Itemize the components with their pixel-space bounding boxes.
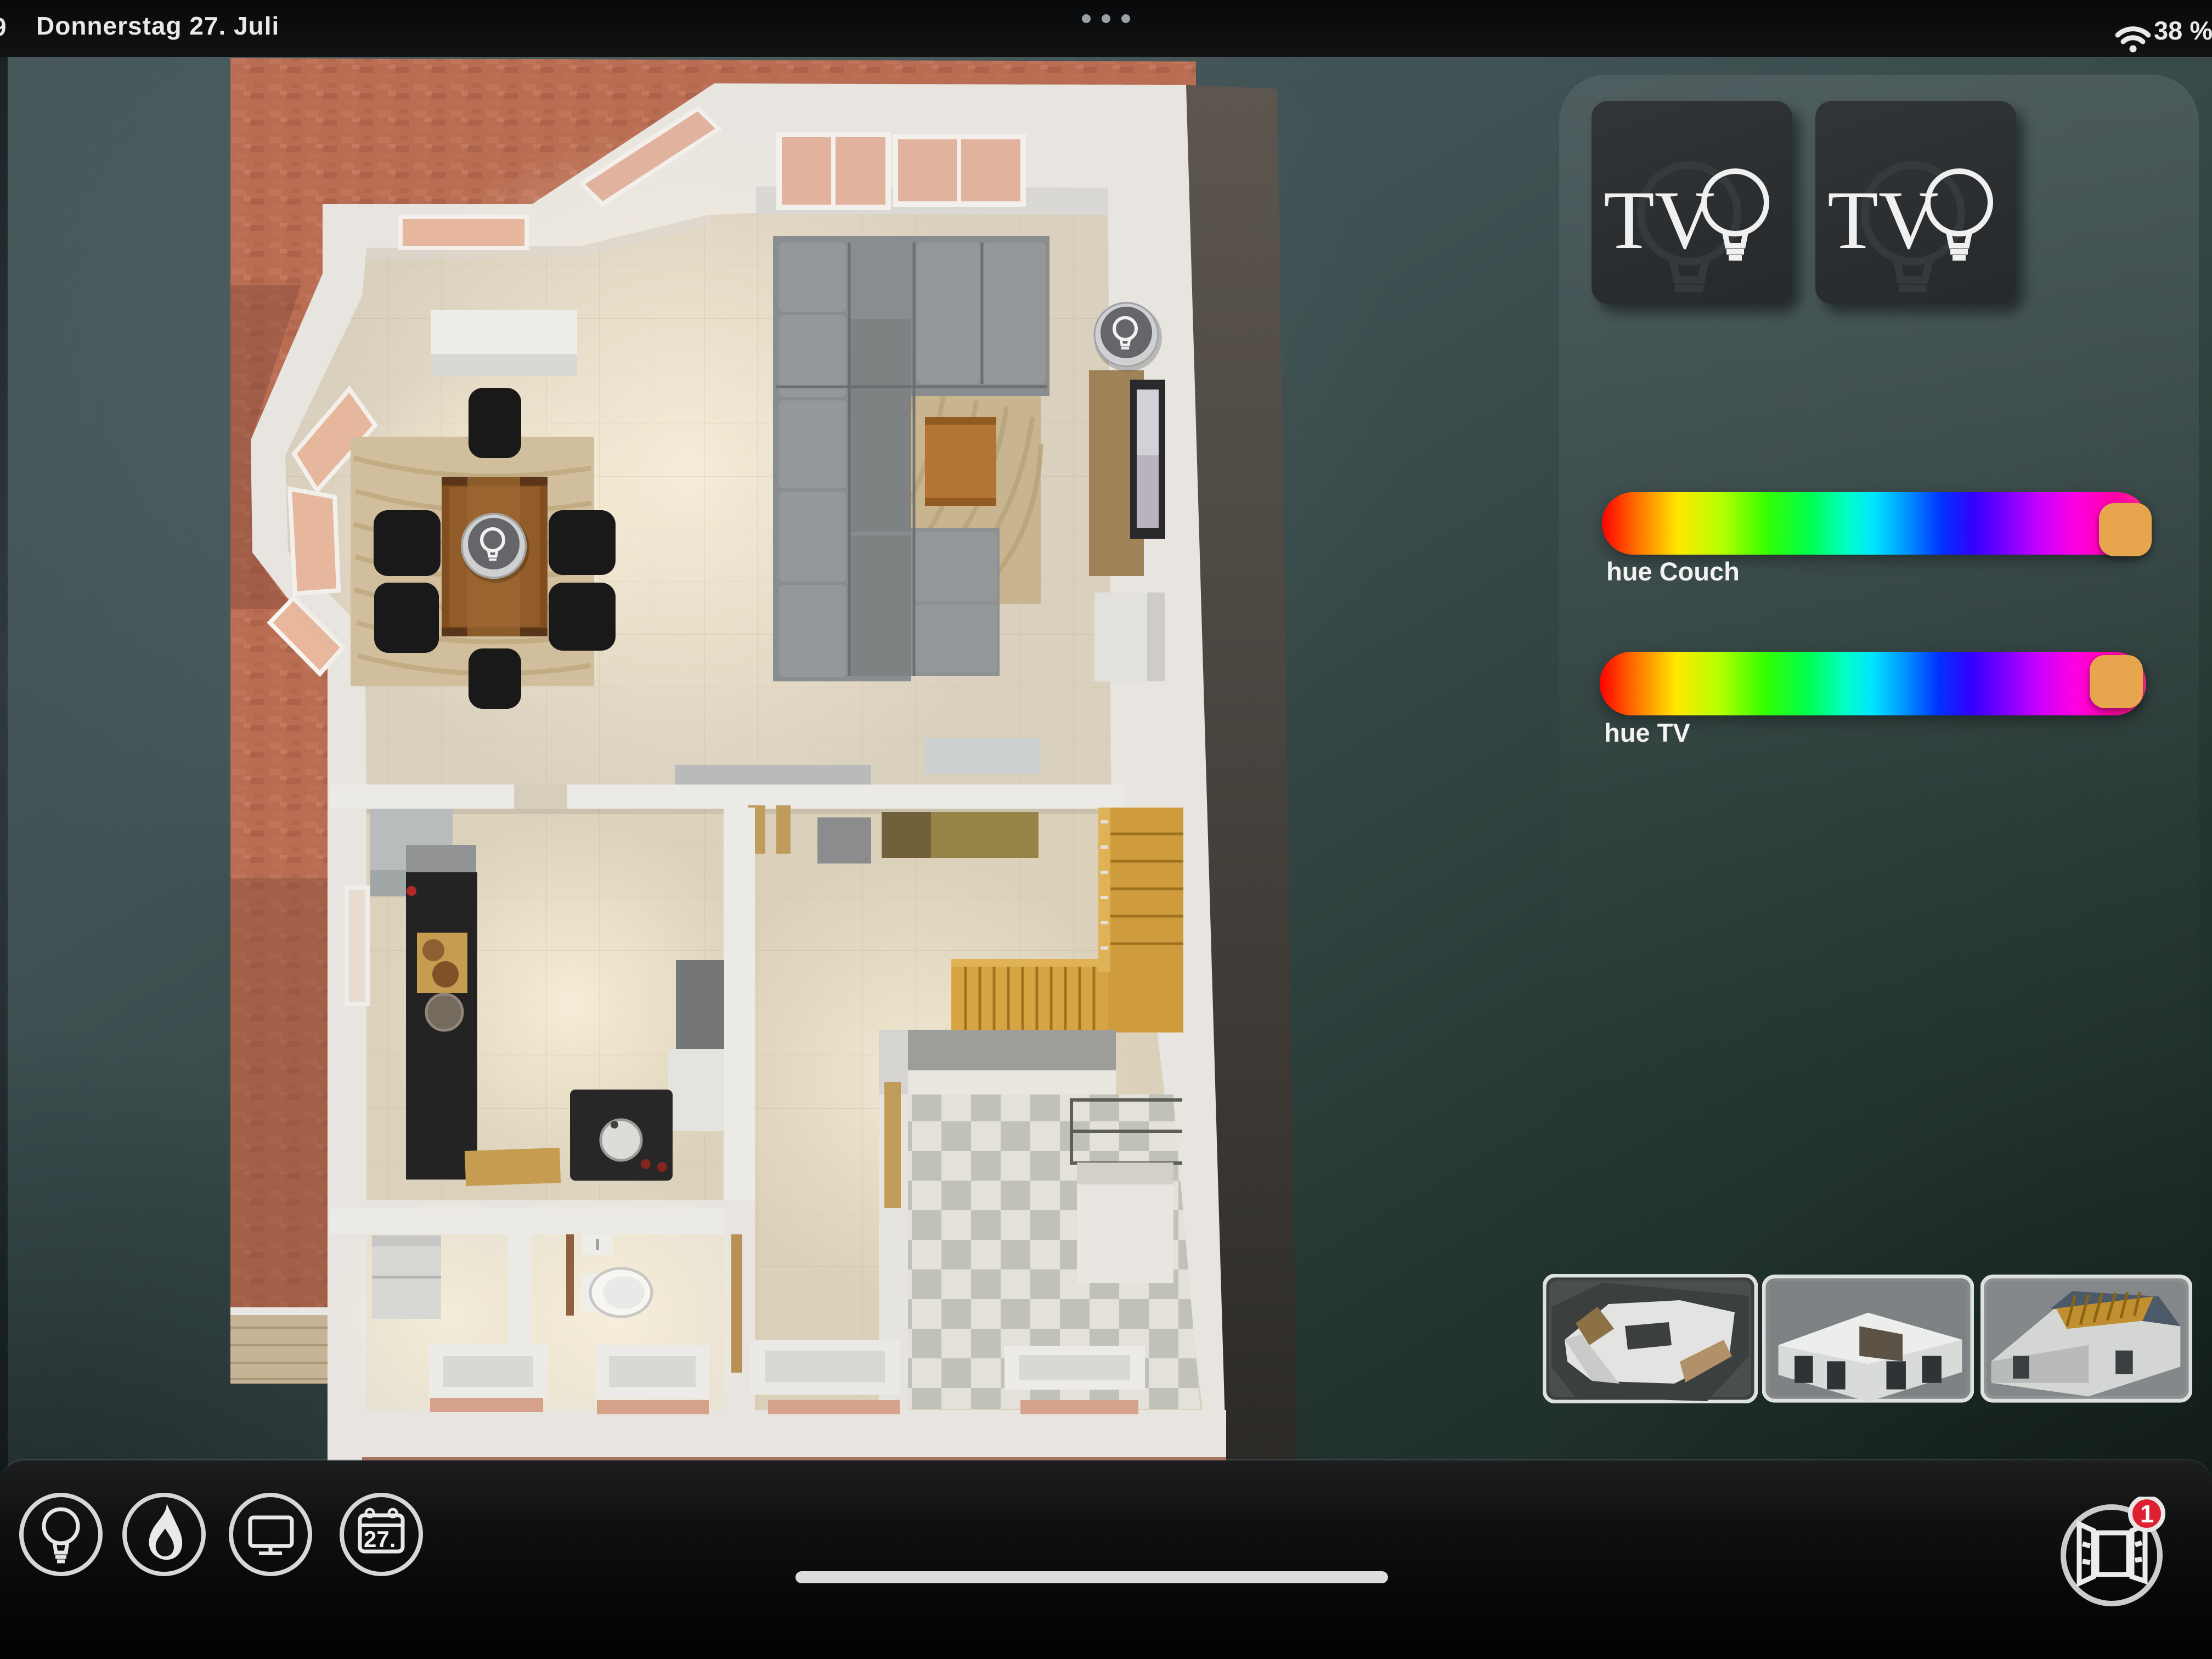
svg-text:27.: 27. — [364, 1526, 396, 1552]
svg-text:TV: TV — [1604, 174, 1715, 266]
svg-text:1: 1 — [2140, 1500, 2154, 1528]
svg-text:TV: TV — [1827, 174, 1939, 266]
